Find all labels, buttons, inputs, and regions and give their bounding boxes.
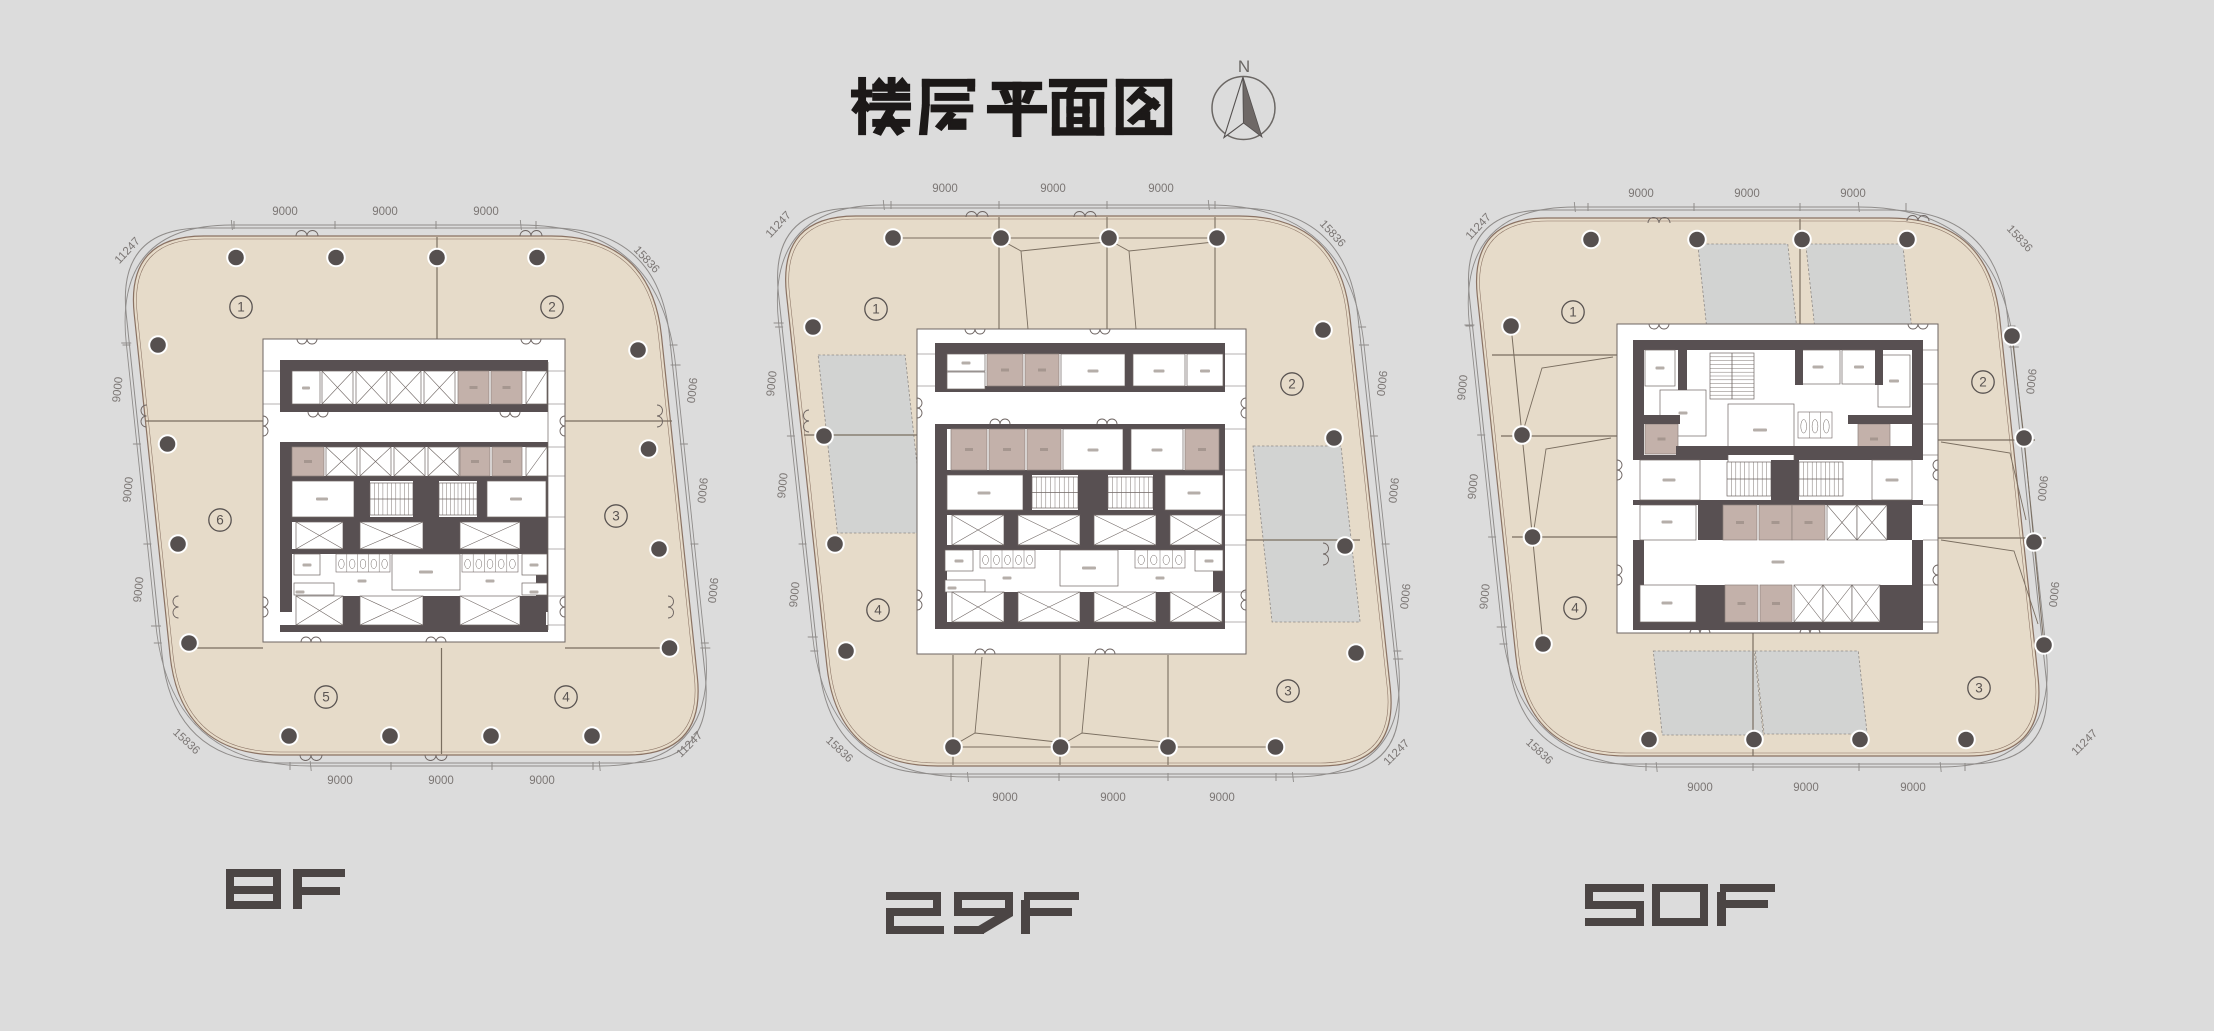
svg-text:9000: 9000 (1734, 188, 1760, 200)
svg-text:4: 4 (874, 603, 882, 618)
svg-text:4: 4 (562, 690, 570, 705)
svg-text:9000: 9000 (1793, 782, 1819, 794)
svg-text:9000: 9000 (1100, 792, 1126, 804)
svg-text:9000: 9000 (992, 792, 1018, 804)
svg-text:9000: 9000 (1840, 188, 1866, 200)
svg-text:2: 2 (1979, 375, 1987, 390)
svg-text:9000: 9000 (1040, 183, 1066, 195)
svg-text:9000: 9000 (473, 206, 499, 218)
svg-text:9000: 9000 (1148, 183, 1174, 195)
svg-text:5: 5 (322, 690, 330, 705)
svg-text:3: 3 (612, 509, 620, 524)
svg-text:9000: 9000 (1687, 782, 1713, 794)
svg-text:9000: 9000 (428, 775, 454, 787)
svg-text:2: 2 (1288, 377, 1296, 392)
svg-text:3: 3 (1284, 684, 1292, 699)
svg-text:9000: 9000 (529, 775, 555, 787)
svg-text:N: N (1238, 57, 1250, 76)
svg-text:9000: 9000 (1900, 782, 1926, 794)
svg-text:1: 1 (237, 300, 245, 315)
svg-text:6: 6 (216, 513, 224, 528)
svg-text:9000: 9000 (1209, 792, 1235, 804)
svg-text:4: 4 (1571, 601, 1579, 616)
svg-text:1: 1 (872, 302, 880, 317)
svg-text:1: 1 (1569, 305, 1577, 320)
svg-text:9000: 9000 (327, 775, 353, 787)
svg-text:3: 3 (1975, 681, 1983, 696)
svg-text:9000: 9000 (932, 183, 958, 195)
svg-text:9000: 9000 (372, 206, 398, 218)
svg-text:2: 2 (548, 300, 556, 315)
svg-text:9000: 9000 (272, 206, 298, 218)
svg-text:9000: 9000 (1628, 188, 1654, 200)
